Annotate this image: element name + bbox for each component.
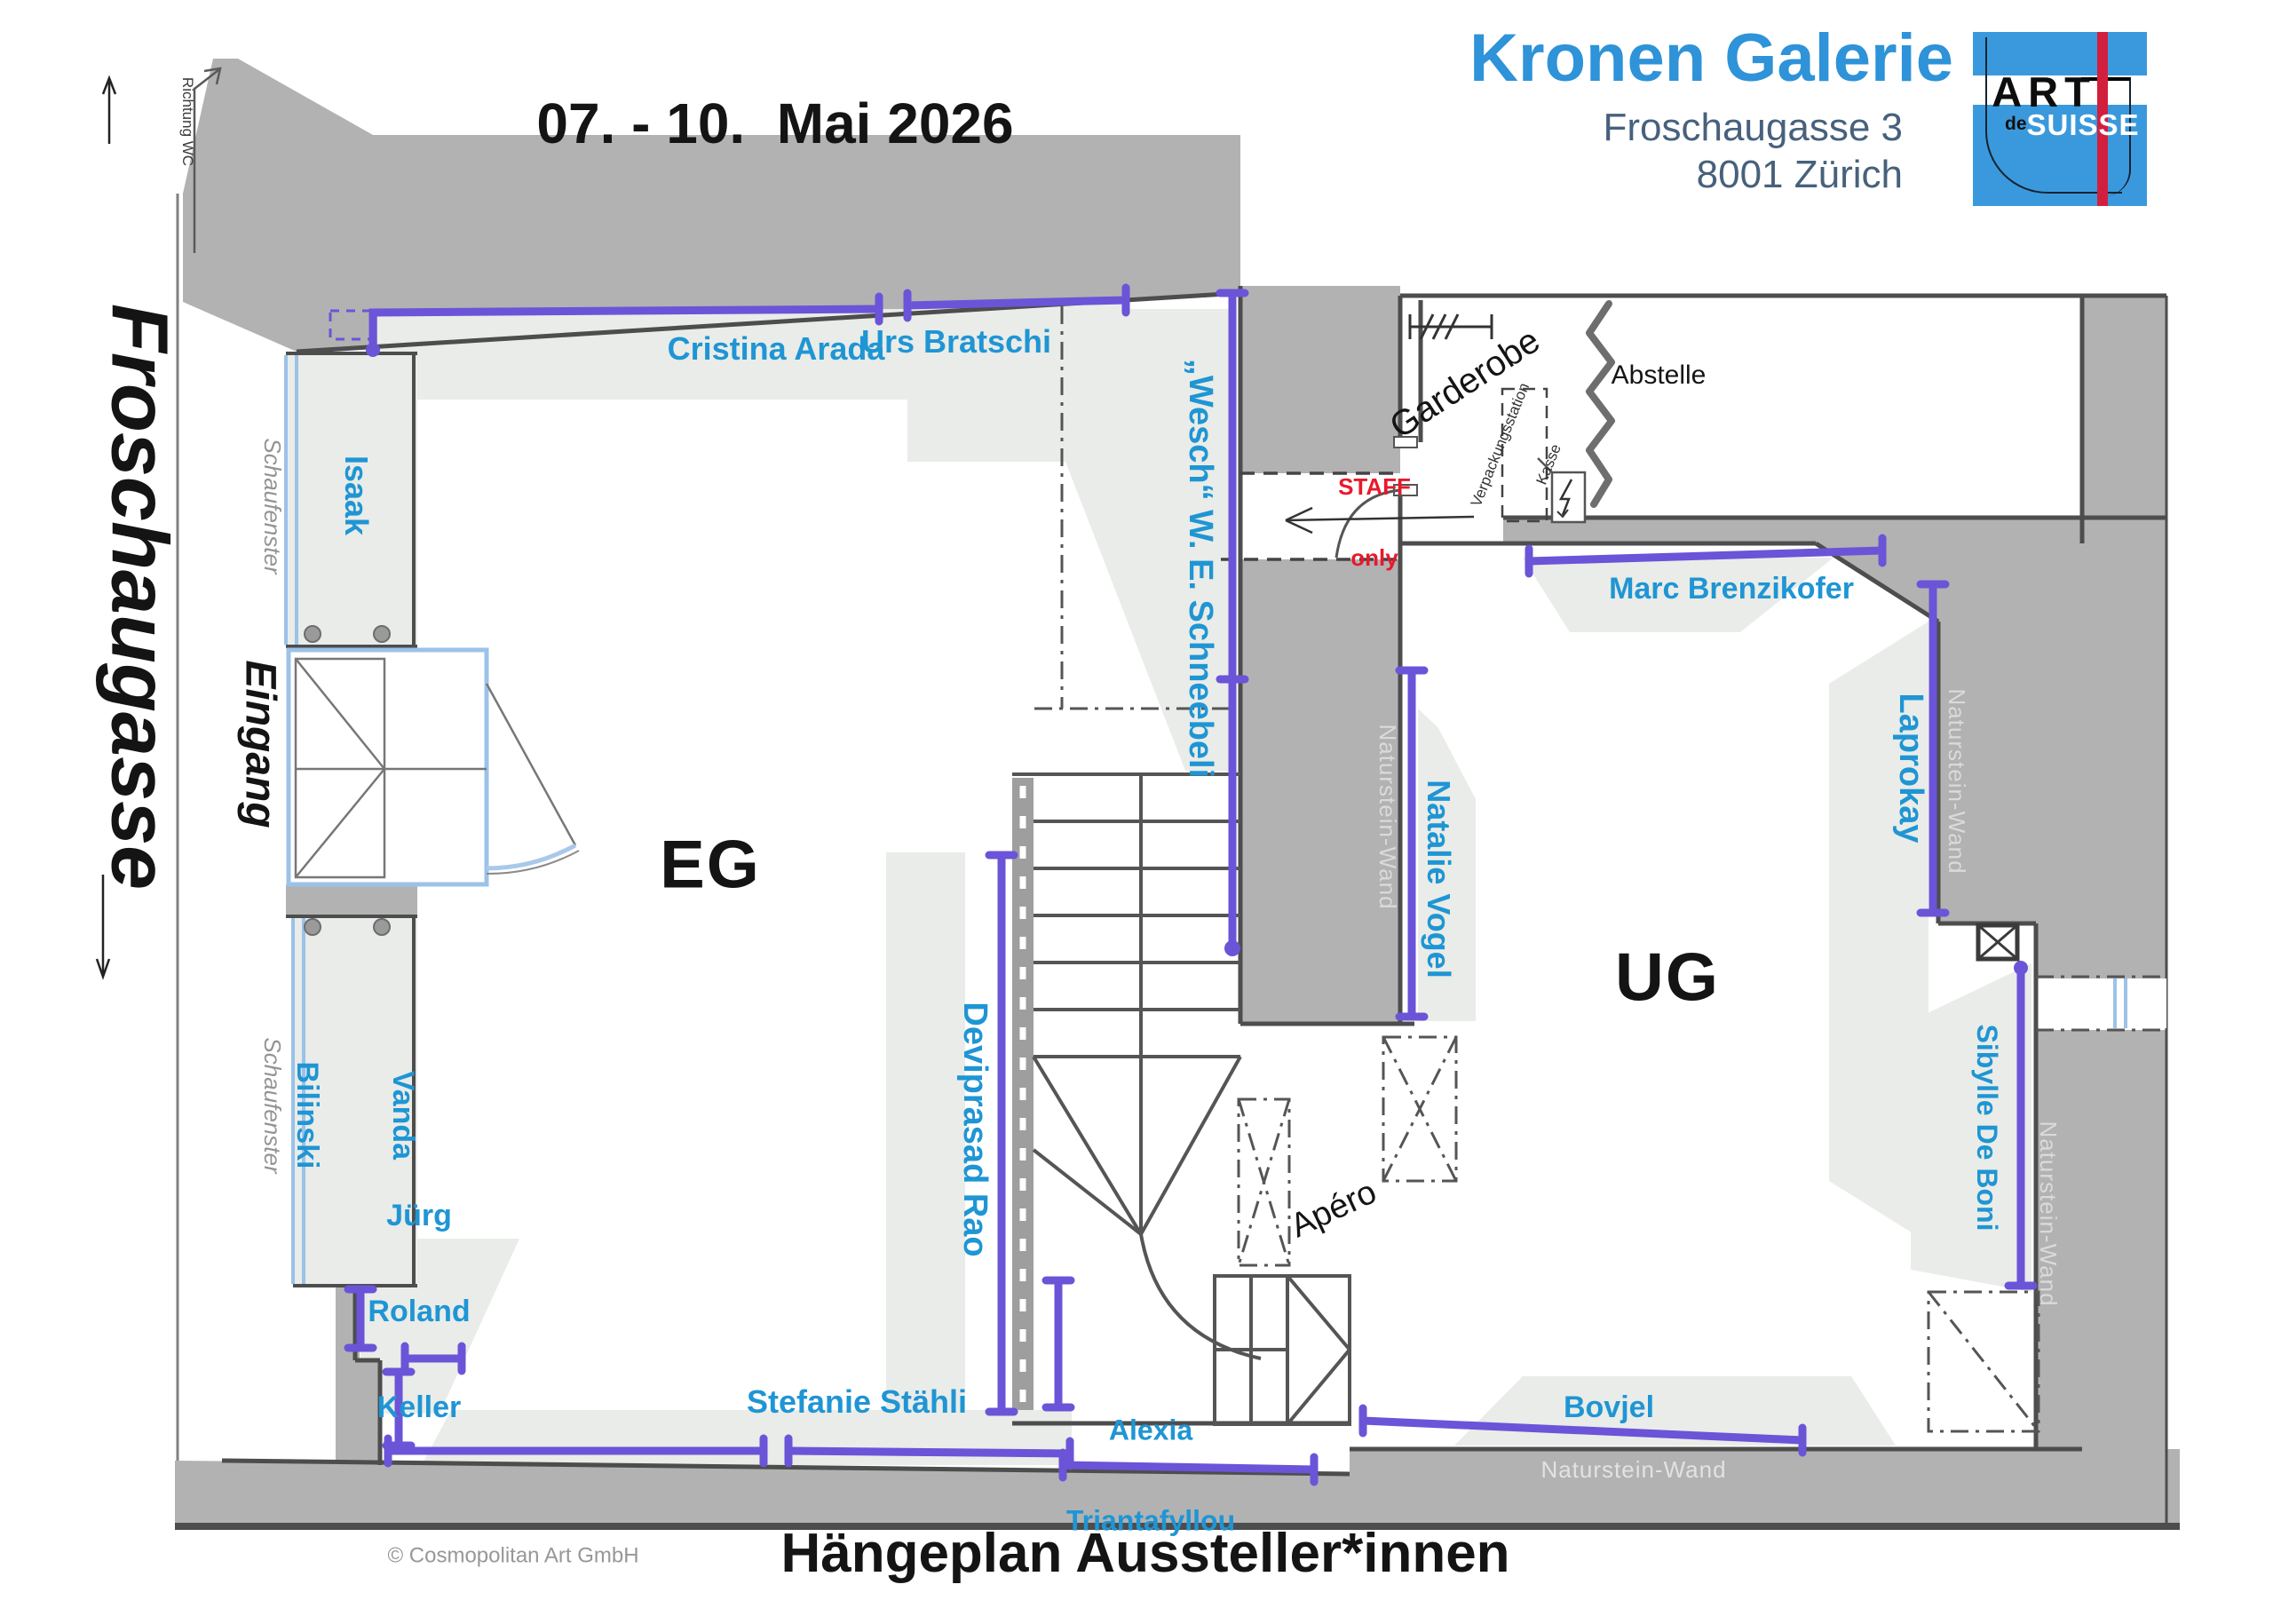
- exhibitor-sibylle-de-boni: Sibylle De Boni: [1971, 1025, 2001, 1232]
- logo-de: de: [2005, 114, 2027, 134]
- wall-bottom-ug: [1350, 1449, 2180, 1524]
- wall-niche: [2095, 978, 2166, 1028]
- storage-label: Abstelle: [1612, 361, 1707, 390]
- stone-wall-label-right-lower: Naturstein-Wand: [2035, 1121, 2060, 1306]
- exhibitor-deviprasad-rao: Deviprasad Rao: [957, 1002, 993, 1256]
- stone-wall-label-bottom: Naturstein-Wand: [1540, 1458, 1726, 1483]
- exhibitor-bovjel: Bovjel: [1564, 1391, 1654, 1423]
- column-symbol: [1978, 925, 2017, 959]
- exhibitor-wesch-schneebeli: „Wesch“ W. E. Schneebeli: [1183, 359, 1218, 778]
- event-date: 07. - 10. Mai 2026: [536, 94, 1013, 154]
- staff-line2: only: [1338, 546, 1411, 570]
- shop-window-label-1: Schaufenster: [259, 438, 284, 574]
- vanda-line2: Bilinski: [291, 1062, 323, 1169]
- wall-abstelle-bottom: [1503, 518, 2166, 543]
- packing-line2: Kasse: [1516, 400, 1581, 529]
- staff-only-label: STAFF only: [1338, 428, 1411, 616]
- gallery-name: Kronen Galerie: [1469, 25, 1953, 92]
- exhibitor-stefanie-staehli: Stefanie Stähli: [747, 1385, 967, 1419]
- exhibitor-juerg-roland-keller: Jürg Roland Keller: [368, 1136, 470, 1487]
- wc-direction-note: Richtung WC: [179, 77, 195, 166]
- gallery-address: Froschaugasse 3 8001 Zürich: [1603, 105, 1903, 199]
- street-name: Froschaugasse: [96, 304, 180, 890]
- staff-line1: STAFF: [1338, 475, 1411, 499]
- art-de-suisse-logo: ART deSUISSE: [1973, 32, 2147, 206]
- exhibitor-isaak: Isaak: [339, 456, 373, 535]
- juerg-line2: Roland: [368, 1295, 470, 1327]
- packing-line1: Verpackungsstation: [1468, 381, 1533, 510]
- exhibitor-marc-brenzikofer: Marc Brenzikofer: [1609, 573, 1854, 605]
- stone-wall-label-right-upper: Naturstein-Wand: [1944, 688, 1968, 874]
- exhibitor-urs-bratschi: Urs Bratschi: [861, 325, 1051, 359]
- alexia-line1: Alexia: [1066, 1415, 1235, 1446]
- floor-label-eg: EG: [660, 830, 761, 902]
- stone-wall-label-center: Naturstein-Wand: [1374, 724, 1399, 909]
- address-line1: Froschaugasse 3: [1603, 105, 1903, 152]
- stair-rail-strip: [1012, 778, 1034, 1424]
- floor-label-ug: UG: [1615, 943, 1720, 1015]
- address-line2: 8001 Zürich: [1603, 152, 1903, 199]
- logo-suisse: SUISSE: [2027, 108, 2140, 141]
- copyright-note: © Cosmopolitan Art GmbH: [387, 1544, 638, 1566]
- juerg-line1: Jürg: [368, 1200, 470, 1232]
- line-urs: [907, 300, 1126, 305]
- floorplan-page: 07. - 10. Mai 2026 Kronen Galerie Frosch…: [0, 0, 2273, 1624]
- exhibitor-cristina-arada: Cristina Arada: [668, 332, 885, 366]
- zigzag-icon: [1589, 304, 1612, 504]
- wall-right-top: [2082, 297, 2166, 543]
- zone-deviprasad: [886, 852, 965, 1414]
- line-stefanie-2: [788, 1451, 1070, 1454]
- plan-title: Hängeplan Aussteller*innen: [780, 1525, 1509, 1583]
- exhibitor-laprokay: Laprokay: [1893, 693, 1928, 844]
- logo-desuisse-text: deSUISSE: [2005, 108, 2140, 142]
- staircase-eg: [1012, 774, 1261, 1359]
- entrance-label: Eingang: [237, 660, 282, 828]
- juerg-line3: Keller: [368, 1391, 470, 1423]
- wall-pier-entrance: [286, 884, 417, 916]
- wall-right-above-niche: [2036, 923, 2166, 978]
- exhibitor-natalie-vogel: Natalie Vogel: [1422, 780, 1455, 978]
